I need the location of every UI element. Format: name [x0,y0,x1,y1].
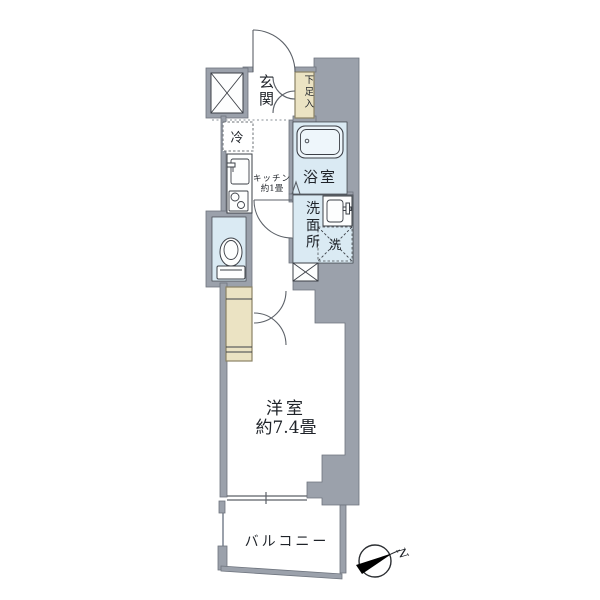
bathtub-icon [297,126,343,158]
label-washer: 洗 [329,237,342,252]
closet-door-arc-top [254,291,286,323]
label-western-room: 洋室 [266,399,306,419]
label-shoe-box: 下足入 [305,75,315,110]
label-balcony: バルコニー [245,534,330,550]
wall-balcony-bottom [221,566,342,579]
wall-washroom-stub-bottom [289,238,293,263]
toilet-bowl-icon [220,238,242,266]
label-kitchen: キッチン [253,174,291,184]
wall-top-right [295,67,316,72]
hall-door-arc [254,200,292,238]
label-entrance: 玄関 [259,73,274,108]
label-washroom: 洗面所 [306,201,320,251]
label-kitchen-size: 約1畳 [261,183,284,194]
floor-plan-page: N 玄関 下足入 冷 キッチン 約1畳 浴室 洗面所 洗 洋室 約7.4畳 バル… [0,0,600,600]
closet-door-arc-bottom [254,313,286,345]
compass-north-label: N [393,544,411,561]
label-western-room-size: 約7.4畳 [255,418,316,438]
wall-washroom-stub-top [289,194,293,202]
label-fridge: 冷 [230,131,243,146]
compass-icon: N [356,544,411,577]
toilet-tank-icon [217,266,245,279]
shoebox-door-arc-bottom [273,91,295,113]
kitchen-faucet-icon [227,163,235,167]
wall-balcony-stub-top [219,501,225,513]
closet [226,287,252,361]
entrance-door-arc [253,30,295,72]
shoebox-door-arc-top [273,77,295,99]
floor-plan: N 玄関 下足入 冷 キッチン 約1畳 浴室 洗面所 洗 洋室 約7.4畳 バル… [0,0,600,600]
wall-balcony-right [340,505,346,573]
label-bathroom: 浴室 [303,168,337,186]
washbasin-faucet-v [346,203,350,214]
